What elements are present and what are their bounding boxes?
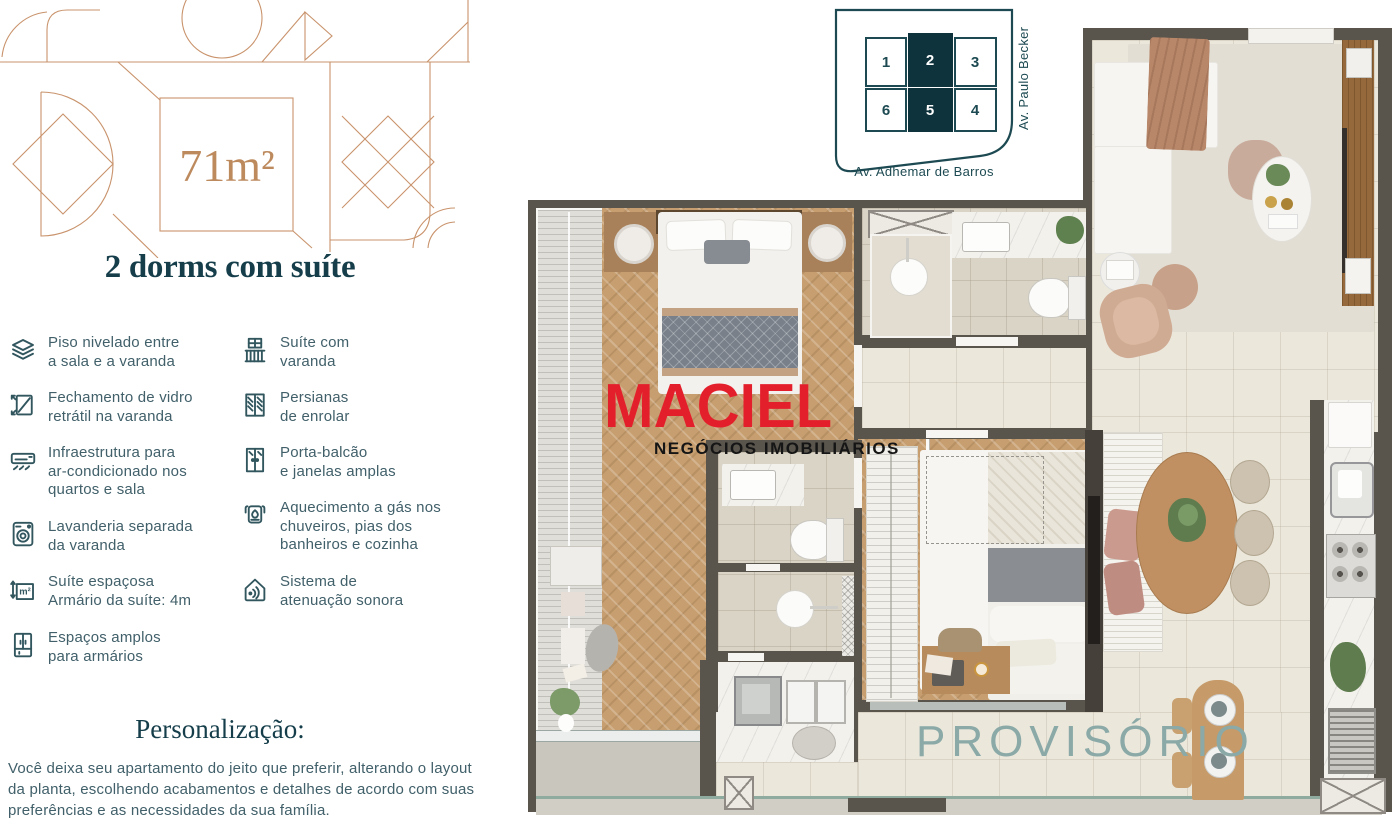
floor-plan: MACIEL NEGÓCIOS IMOBILIÁRIOS PROVISÓRIO: [528, 0, 1394, 816]
bedroom2-blanket-band: [988, 548, 1088, 602]
page-title: 2 dorms com suíte: [0, 249, 460, 285]
social-vanity-sink: [730, 470, 776, 500]
hall-floor: [862, 335, 1086, 438]
shower-head: [890, 258, 928, 296]
side-table-books: [1106, 260, 1134, 280]
feature-text: Sistema de atenuação sonora: [280, 573, 403, 610]
personalization-heading: Personalização:: [0, 714, 440, 745]
suite-bath-door-opening: [956, 337, 1018, 346]
social-shower-head: [776, 590, 814, 628]
blanket-fold: [662, 308, 798, 316]
feature-text: Infraestrutura para ar-condicionado nos …: [48, 444, 187, 500]
bottom-wall-chunk: [848, 798, 946, 812]
dining-chair: [1230, 460, 1270, 504]
table-plant: [1266, 164, 1290, 186]
gold-cup: [1281, 198, 1293, 210]
brand-watermark: MACIEL: [604, 376, 832, 438]
vase: [558, 714, 574, 732]
sofa-throw-blanket: [1146, 37, 1210, 151]
balcony-door-icon: [240, 445, 270, 475]
coffee-mug: [974, 662, 989, 677]
bedroom2-door-opening: [926, 430, 988, 438]
unit-area-label: 71m²: [160, 98, 294, 232]
suite-desk: [561, 628, 585, 664]
suite-door-opening: [854, 345, 862, 407]
feature-text: Suíte espaçosa Armário da suíte: 4m: [48, 573, 191, 610]
feature-text: Piso nivelado entre a sala e a varanda: [48, 334, 179, 371]
wardrobe-icon: [8, 630, 38, 660]
shower-arm: [906, 238, 909, 262]
dining-chair: [1234, 510, 1274, 556]
feature-item: Suíte com varanda: [240, 334, 475, 371]
bedroom2-wardrobe: [866, 446, 918, 702]
feature-item: Espaços amplos para armários: [8, 629, 233, 666]
balustrade-terrazzo: [536, 796, 1382, 815]
feature-text: Persianas de enrolar: [280, 389, 350, 426]
sofa-left-arm: [1094, 146, 1172, 254]
retractable-glass-icon: [8, 390, 38, 420]
bolster-pillow: [990, 606, 1090, 642]
feature-text: Fechamento de vidro retrátil na varanda: [48, 389, 193, 426]
svg-text:m²: m²: [19, 587, 30, 597]
brochure-page: 71m² 2 dorms com suíte Piso nivelado ent…: [0, 0, 1400, 822]
dryer: [816, 680, 846, 724]
feature-text: Suíte com varanda: [280, 334, 349, 371]
washer-icon: [8, 519, 38, 549]
bath-shower-divider: [718, 563, 854, 572]
burner: [1332, 542, 1348, 558]
plant-highlight: [1178, 504, 1198, 526]
gold-cup: [1265, 196, 1277, 208]
washer: [786, 680, 816, 724]
feature-text: Aquecimento a gás nos chuveiros, pias do…: [280, 499, 441, 555]
feature-text: Lavanderia separada da varanda: [48, 518, 193, 555]
feature-item: Infraestrutura para ar-condicionado nos …: [8, 444, 233, 500]
varanda-bottom-floor: [536, 740, 704, 798]
kitchen-sink-basin: [1338, 470, 1362, 498]
wardrobe-divider-line: [890, 448, 892, 698]
louvered-appliance: [1328, 708, 1376, 774]
kitchen-plant: [1330, 642, 1366, 692]
coffee-table-book: [1268, 214, 1298, 229]
balcony-icon: [240, 335, 270, 365]
speaker-device: [1346, 48, 1372, 78]
social-shower-arm: [810, 606, 838, 609]
bedroom2-sliding-glass: [870, 702, 1066, 710]
roller-blind-icon: [240, 390, 270, 420]
laundry-door-opening: [728, 653, 764, 661]
suite-balcony-glass-door: [536, 730, 700, 742]
feature-item: Fechamento de vidro retrátil na varanda: [8, 389, 233, 426]
bedroom2-chair: [938, 628, 982, 652]
burner: [1352, 566, 1368, 582]
suite-desk-panel: [561, 592, 585, 616]
book-stack: [1345, 258, 1371, 294]
kitchen-shaft-box: [1320, 778, 1386, 814]
flower-plant: [550, 688, 580, 716]
feature-item: m² Suíte espaçosa Armário da suíte: 4m: [8, 573, 243, 610]
area-m2-icon: m²: [8, 574, 38, 604]
dashed-projection: [926, 456, 1044, 544]
bench-cushion: [1103, 560, 1146, 617]
plate-food: [1211, 701, 1227, 717]
air-conditioner-icon: [8, 445, 38, 475]
refrigerator: [1328, 402, 1372, 448]
social-bath-door-opening: [854, 458, 862, 508]
social-toilet-tank: [826, 518, 844, 562]
floor-layers-icon: [8, 335, 38, 365]
feature-text: Espaços amplos para armários: [48, 629, 161, 666]
feature-item: Aquecimento a gás nos chuveiros, pias do…: [240, 499, 485, 555]
bedside-lamp-left: [614, 224, 654, 264]
feature-item: Piso nivelado entre a sala e a varanda: [8, 334, 233, 371]
tv-screen-edge: [1342, 128, 1347, 273]
bathroom-plant: [1056, 216, 1084, 244]
personalization-body: Você deixa seu apartamento do jeito que …: [8, 758, 486, 821]
shower-glass-panel: [842, 576, 854, 656]
status-watermark: PROVISÓRIO: [916, 720, 1255, 764]
laundry-basket: [792, 726, 836, 760]
burner: [1332, 566, 1348, 582]
shaft-box-small: [724, 776, 754, 810]
suite-dresser: [550, 546, 602, 586]
accent-pillow: [704, 240, 750, 264]
laundry-left-wall: [700, 660, 716, 798]
feature-item: Sistema de atenuação sonora: [240, 573, 475, 610]
entry-marble-sill: [1248, 28, 1334, 44]
feature-item: Persianas de enrolar: [240, 389, 475, 426]
laundry-sink-basin: [742, 684, 770, 714]
brand-subtitle: NEGÓCIOS IMOBILIÁRIOS: [654, 440, 900, 457]
sound-insulation-icon: [240, 574, 270, 604]
gas-heater-icon: [240, 500, 270, 530]
shower-opening: [746, 564, 780, 571]
burner: [1352, 542, 1368, 558]
vanity-sink: [962, 222, 1010, 252]
toilet-tank: [1068, 276, 1086, 320]
toilet-bowl: [1028, 278, 1070, 318]
dining-tv-screen: [1088, 496, 1100, 644]
feature-item: Porta-balcão e janelas amplas: [240, 444, 475, 481]
dining-chair: [1230, 560, 1270, 606]
kitchen-wall: [1310, 400, 1324, 798]
bedside-lamp-right: [808, 224, 846, 262]
feature-item: Lavanderia separada da varanda: [8, 518, 233, 555]
notebook: [925, 654, 953, 675]
feature-text: Porta-balcão e janelas amplas: [280, 444, 396, 481]
quilt: [662, 316, 798, 368]
